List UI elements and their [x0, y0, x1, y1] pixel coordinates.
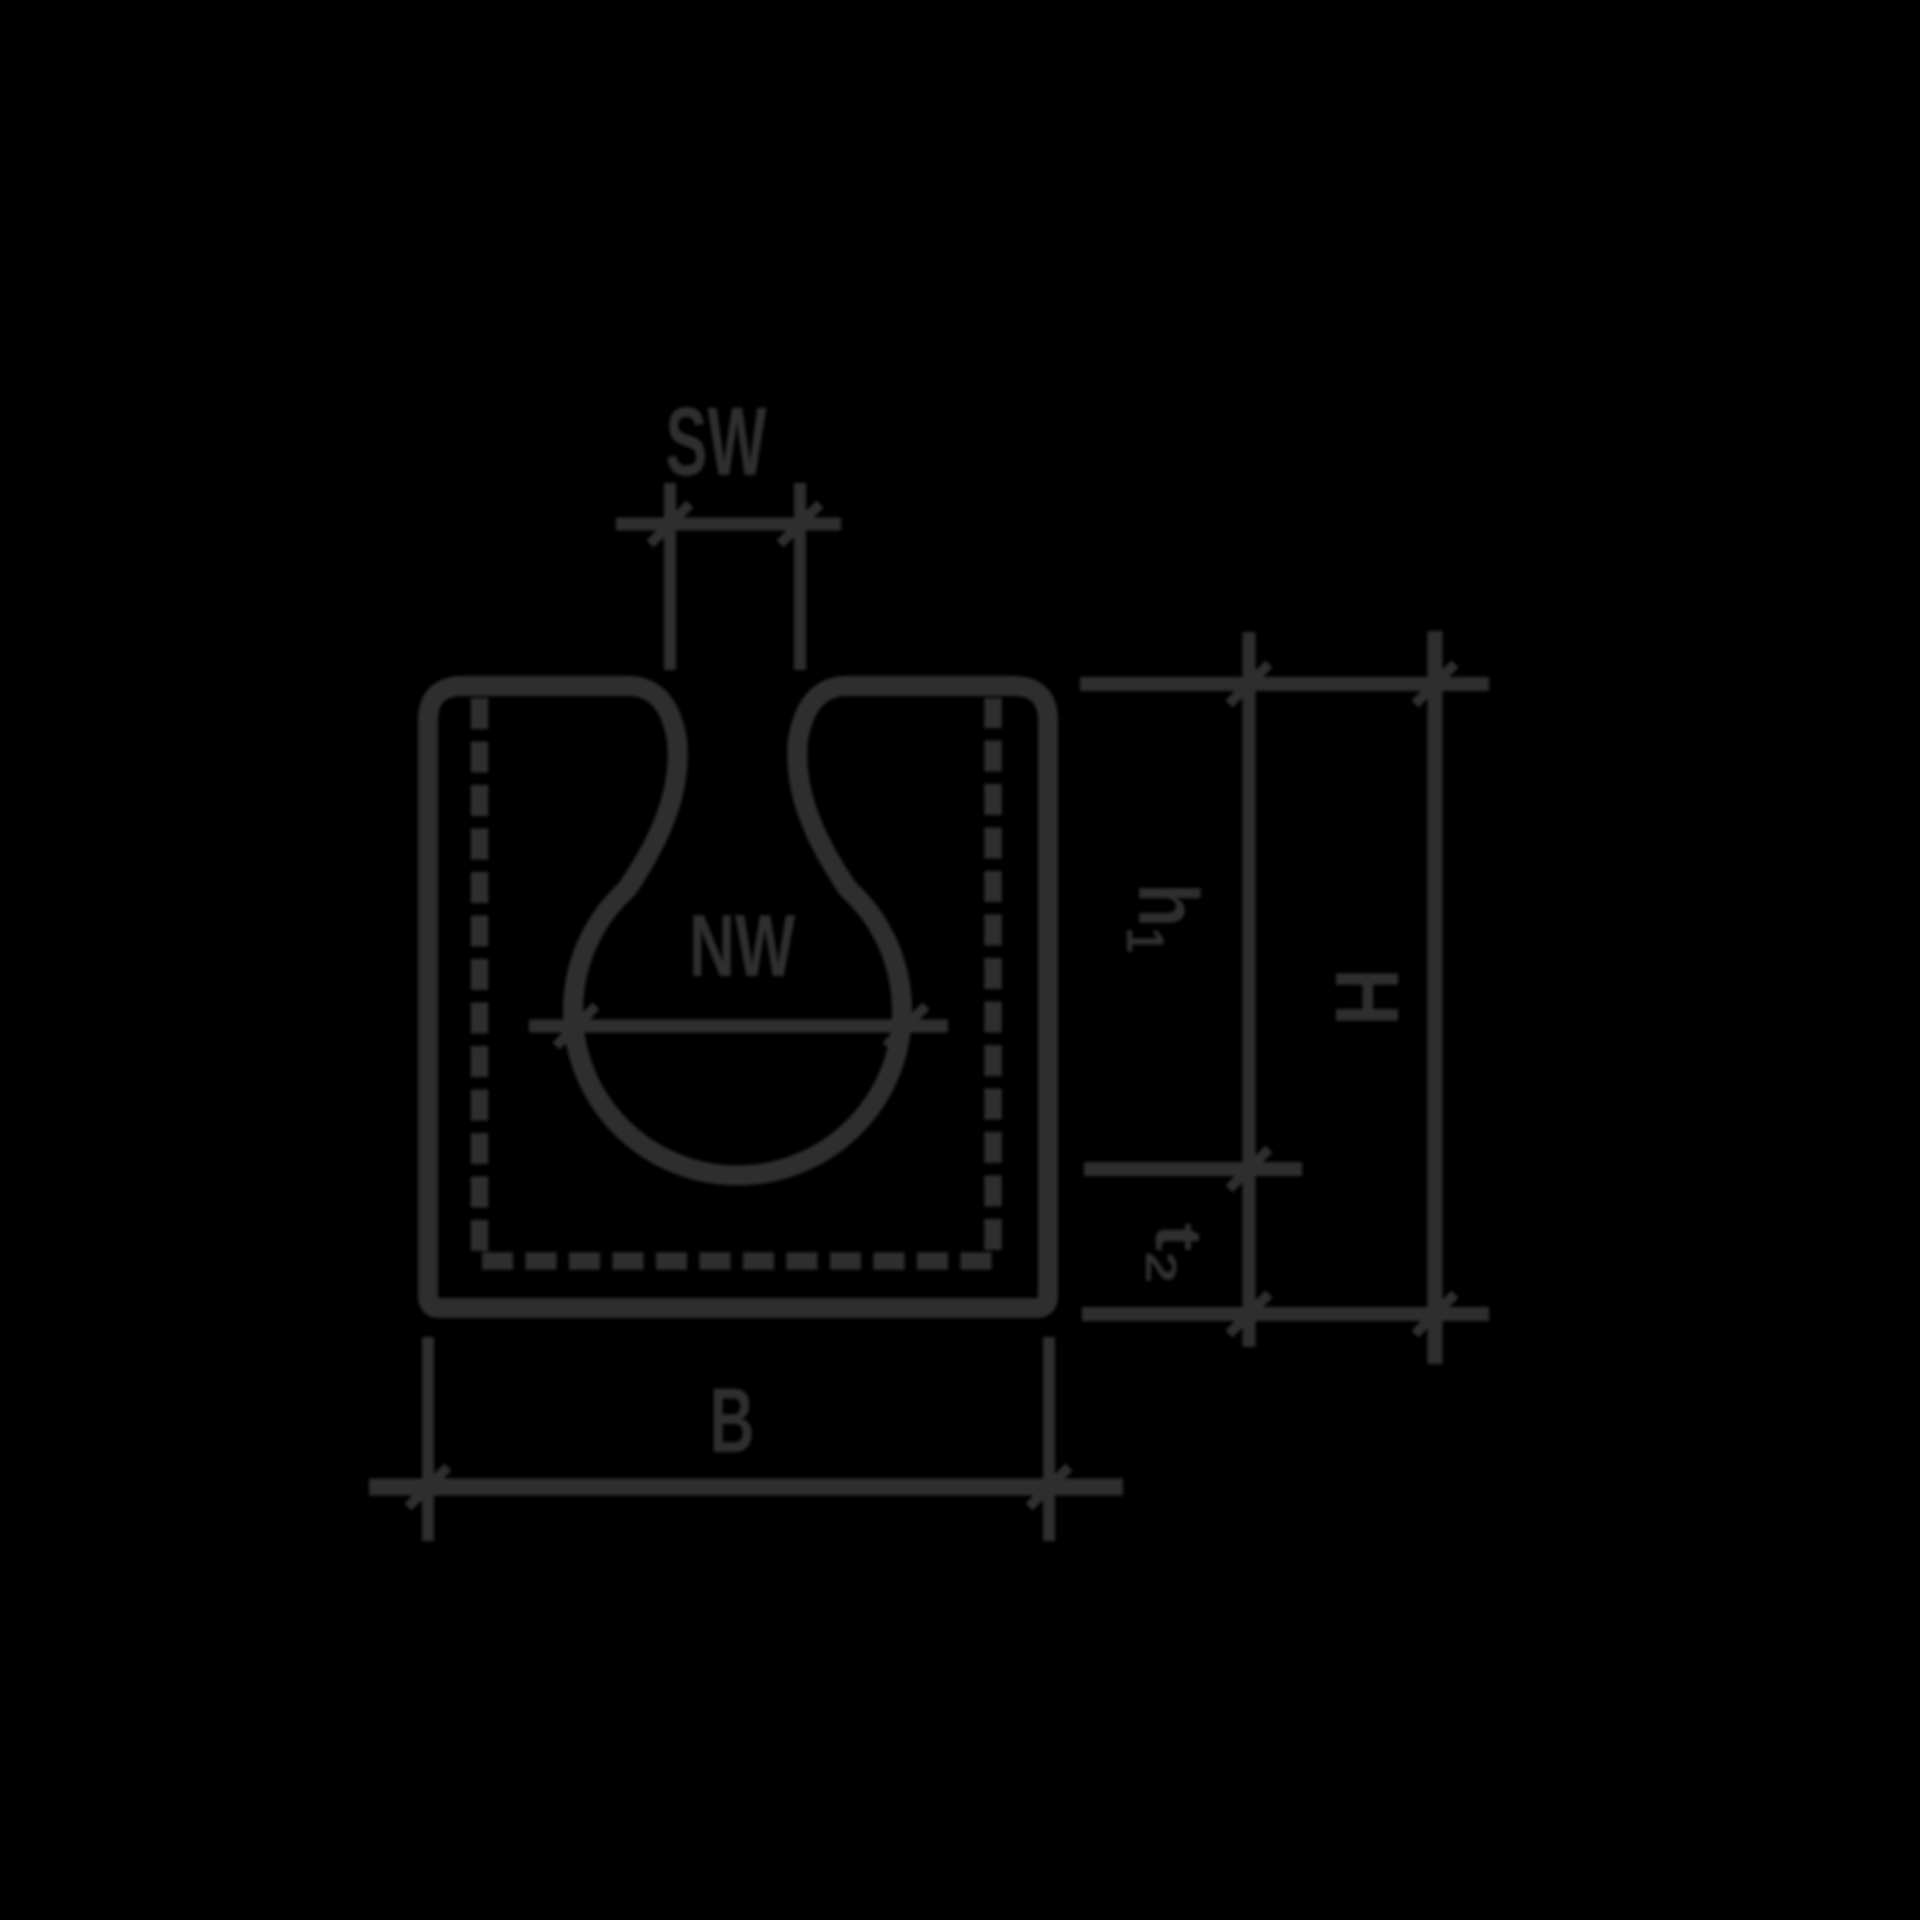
- svg-text:H: H: [1316, 968, 1416, 1026]
- svg-text:B: B: [710, 1370, 755, 1472]
- svg-text:NW: NW: [689, 896, 795, 995]
- svg-text:SW: SW: [666, 387, 767, 496]
